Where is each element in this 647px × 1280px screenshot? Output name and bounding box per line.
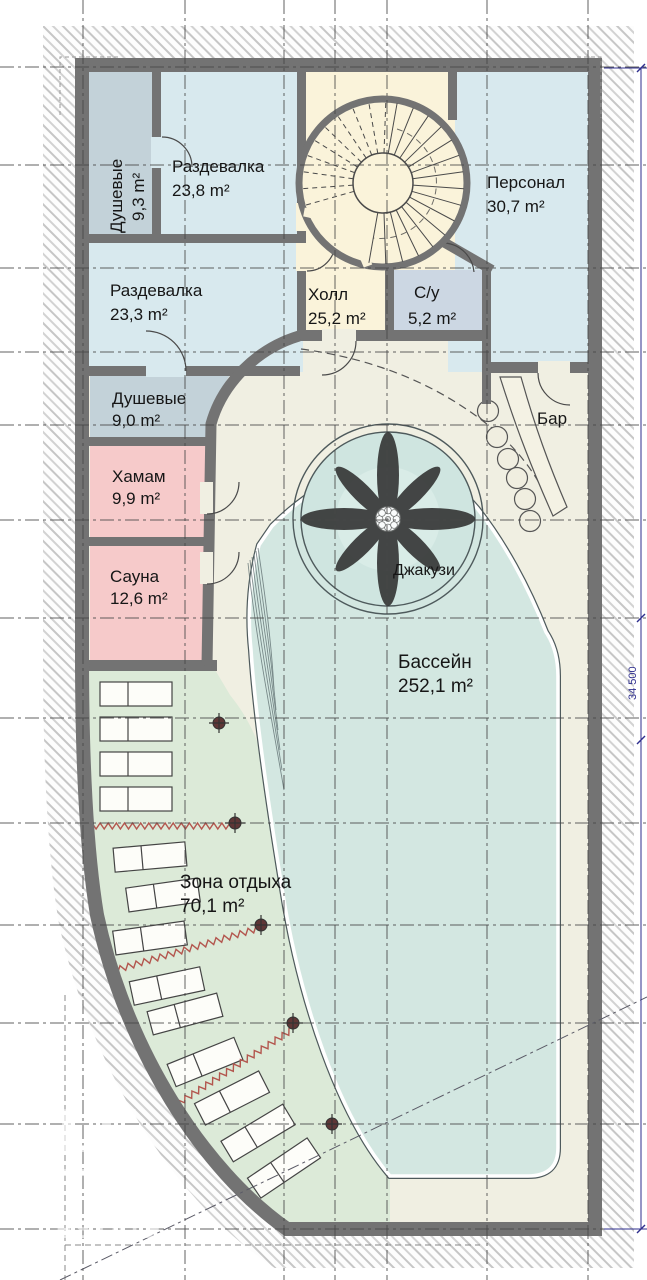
svg-text:Зона отдыха: Зона отдыха: [180, 872, 292, 893]
svg-text:Персонал: Персонал: [487, 173, 565, 192]
svg-text:Бассейн: Бассейн: [398, 652, 472, 673]
svg-text:Сауна: Сауна: [110, 567, 160, 586]
svg-text:23,3 m²: 23,3 m²: [110, 305, 168, 324]
label-bar: Бар: [537, 409, 567, 428]
svg-text:LE: LE: [58, 1097, 141, 1166]
lounge-chair: [100, 752, 172, 776]
svg-text:5,2 m²: 5,2 m²: [408, 309, 457, 328]
svg-text:25,2 m²: 25,2 m²: [308, 309, 366, 328]
label-jacuzzi: Джакузи: [393, 562, 455, 579]
svg-text:Раздевалка: Раздевалка: [172, 157, 265, 176]
svg-text:70,1 m²: 70,1 m²: [180, 896, 244, 917]
svg-text:9,0 m²: 9,0 m²: [112, 411, 161, 430]
svg-text:12,6 m²: 12,6 m²: [110, 589, 168, 608]
svg-text:Душевые: Душевые: [112, 389, 186, 408]
svg-text:Холл: Холл: [308, 285, 348, 304]
svg-text:Хамам: Хамам: [112, 467, 166, 486]
dimension-value: 34 500: [627, 666, 639, 700]
floor-plan-drawing: 34 500 Душевые 9,3 m² Раздевалка 23,8 m²…: [0, 0, 647, 1280]
floor-plan-page: 34 500 Душевые 9,3 m² Раздевалка 23,8 m²…: [0, 0, 647, 1280]
svg-text:252,1 m²: 252,1 m²: [398, 676, 473, 697]
spiral-staircase-icon: [299, 99, 467, 267]
svg-text:ESTATE: ESTATE: [56, 1216, 163, 1244]
svg-text:Раздевалка: Раздевалка: [110, 281, 203, 300]
lounge-chair: [100, 682, 172, 706]
svg-text:Душевые: Душевые: [107, 159, 126, 233]
svg-text:23,8 m²: 23,8 m²: [172, 181, 230, 200]
lounge-chair: [100, 717, 172, 741]
svg-text:9,9 m²: 9,9 m²: [112, 489, 161, 508]
svg-text:С/у: С/у: [414, 283, 440, 302]
svg-text:9,3 m²: 9,3 m²: [129, 172, 148, 221]
lounge-chair: [100, 787, 172, 811]
svg-text:30,7 m²: 30,7 m²: [487, 197, 545, 216]
